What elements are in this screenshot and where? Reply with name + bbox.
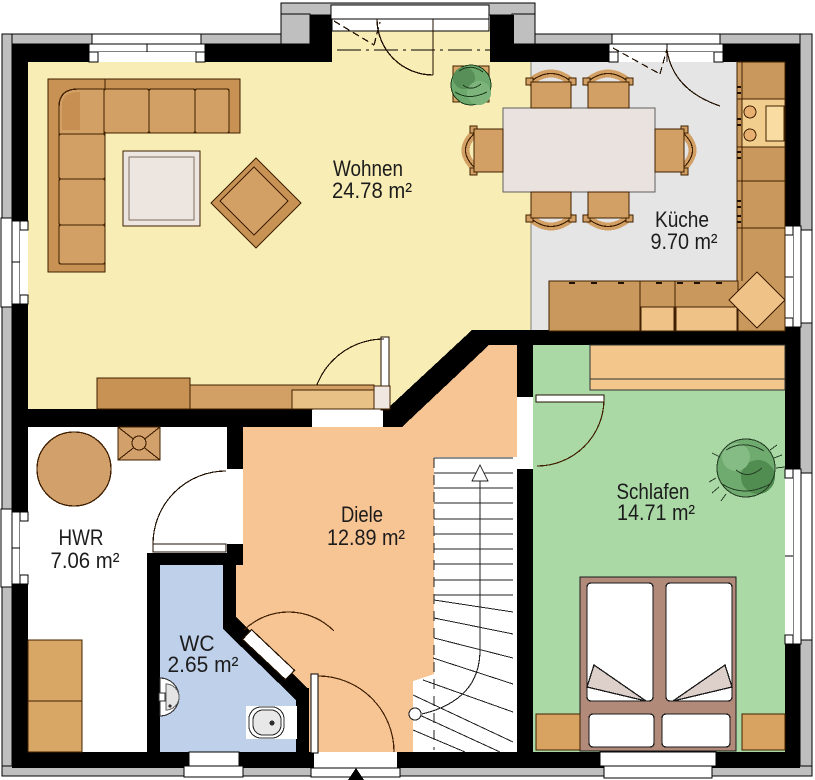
- svg-text:9.70 m²: 9.70 m²: [651, 229, 718, 254]
- svg-text:24.78 m²: 24.78 m²: [332, 178, 412, 203]
- svg-text:2.65 m²: 2.65 m²: [168, 652, 239, 677]
- svg-text:14.71 m²: 14.71 m²: [617, 500, 695, 525]
- svg-text:HWR: HWR: [59, 525, 104, 550]
- svg-text:7.06 m²: 7.06 m²: [51, 548, 120, 573]
- svg-text:12.89 m²: 12.89 m²: [327, 525, 405, 550]
- svg-text:Diele: Diele: [341, 502, 383, 527]
